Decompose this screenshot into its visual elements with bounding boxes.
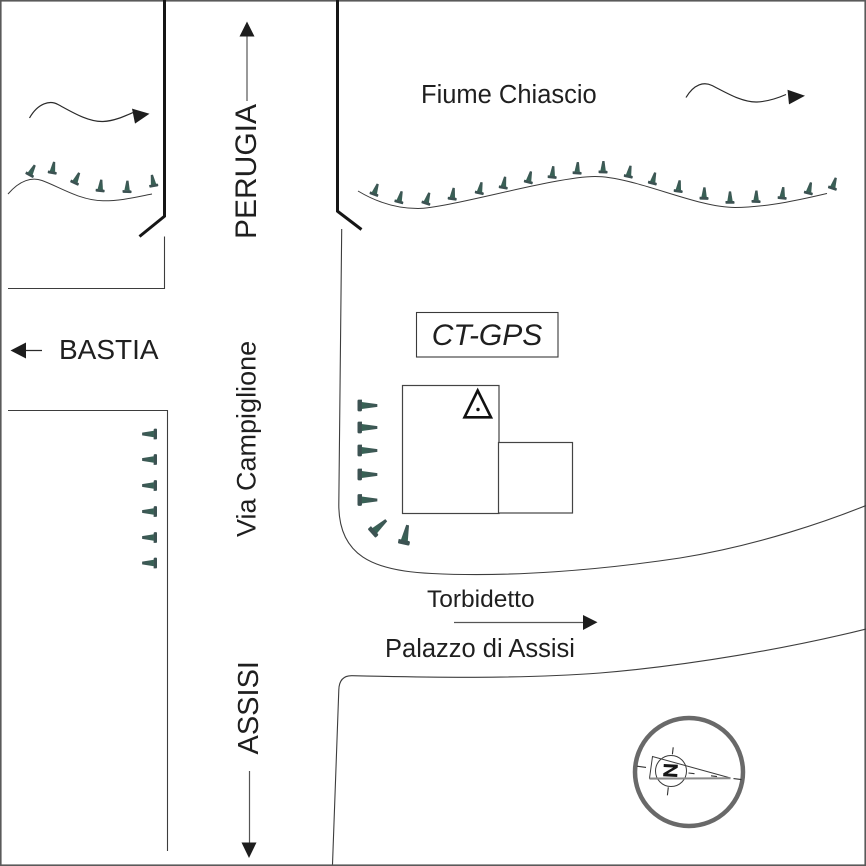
svg-text:ASSISI: ASSISI — [233, 661, 265, 755]
svg-text:Via Campiglione: Via Campiglione — [232, 341, 262, 537]
svg-text:CT-GPS: CT-GPS — [432, 319, 543, 352]
svg-text:Fiume Chiascio: Fiume Chiascio — [421, 81, 597, 109]
svg-text:Torbidetto: Torbidetto — [427, 586, 535, 613]
svg-text:PERUGIA: PERUGIA — [230, 104, 263, 239]
svg-text:BASTIA: BASTIA — [59, 334, 159, 365]
svg-text:Palazzo di Assisi: Palazzo di Assisi — [385, 635, 575, 663]
